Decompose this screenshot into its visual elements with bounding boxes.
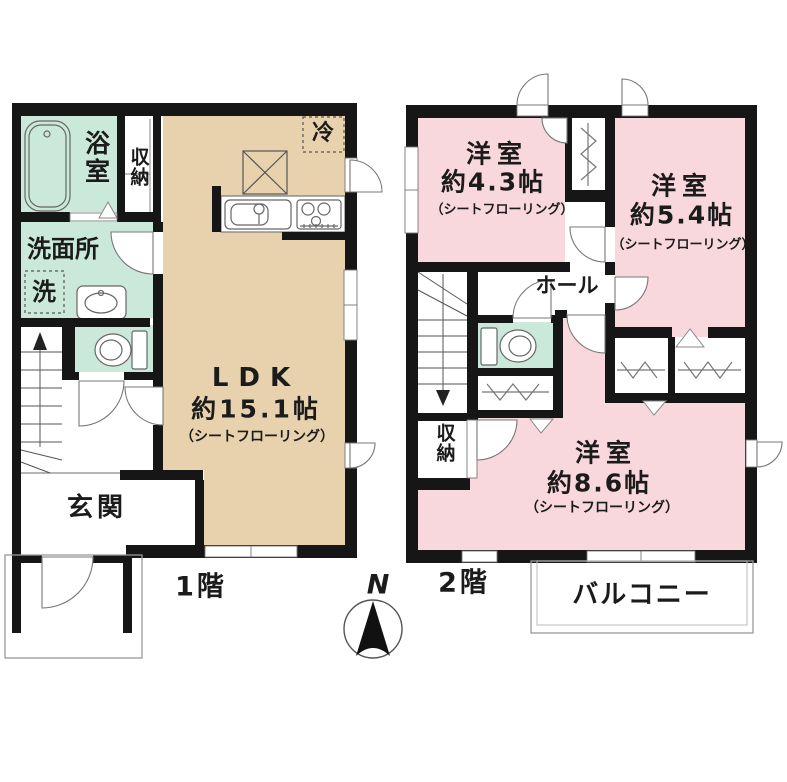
door-ldk-hall [125, 387, 163, 425]
ldk-size-label: 約15.1帖 [191, 397, 321, 422]
bedroom86-floor-corner [418, 490, 467, 550]
bedroom43-size-label: 約4.3帖 [441, 170, 545, 195]
compass-needle-icon [356, 601, 390, 656]
bedroom86-name-label: 洋室 [575, 441, 637, 466]
bedroom86-flooring-label: （シートフローリング） [525, 501, 679, 515]
door-bedroom43 [570, 227, 605, 262]
toilet1-icon [95, 331, 147, 369]
compass-north-label: N [367, 572, 390, 599]
window-bedroom43-west [405, 147, 418, 233]
kitchen-counter [221, 196, 345, 232]
storage2f-door-strip [467, 420, 477, 478]
ldk-floor-lower [204, 470, 345, 545]
door-kitchen-out [350, 160, 382, 192]
window-balcony-sliding [587, 551, 695, 562]
stairs-2f [418, 272, 467, 406]
storage1f-label: 収納 [129, 147, 148, 187]
toilet2-icon [481, 328, 536, 365]
ldk-name-label: LDK [212, 365, 300, 391]
bedroom43-flooring-label: （シートフローリング） [430, 204, 573, 217]
door-ldk-out [350, 443, 375, 468]
washroom-label: 洗面所 [27, 237, 99, 261]
window-ldk-south [205, 546, 297, 557]
washer-label: 洗 [32, 280, 56, 304]
bedroom54-name-label: 洋室 [651, 174, 713, 199]
bedroom86-size-label: 約8.6帖 [547, 471, 651, 496]
floor2-label: 2階 [438, 570, 490, 597]
compass [344, 600, 402, 658]
bedroom43-name-label: 洋室 [466, 142, 528, 167]
window-swing-north-b [622, 79, 648, 105]
entrance-label: 玄関 [67, 495, 127, 521]
stairs-down-arrow [436, 390, 450, 406]
bedroom54-flooring-label: （シートフローリング） [611, 239, 754, 252]
fridge-label: 冷 [312, 123, 334, 145]
window-south-small [462, 551, 497, 562]
bathroom-label: 浴室 [84, 130, 109, 186]
hall-label: ホール [536, 276, 599, 297]
stairs-up-arrow [33, 332, 47, 350]
floor-plan-drawing [0, 0, 787, 782]
window-ldk-east [344, 270, 357, 340]
opening-bedroom86-east [746, 440, 757, 467]
closet-d-floor [478, 376, 553, 410]
opening-north-b [622, 105, 648, 116]
storage2f-label: 収納 [435, 423, 454, 463]
window-swing-east [757, 442, 782, 467]
door-toilet1 [79, 381, 124, 426]
bedroom54-size-label: 約5.4帖 [630, 203, 734, 228]
window-swing-north-a [517, 74, 548, 105]
vanity-sink-icon [77, 286, 126, 319]
opening-north-a [517, 105, 548, 116]
door-entrance [42, 557, 93, 608]
balcony-label: バルコニー [572, 582, 711, 608]
ldk-flooring-label: （シートフローリング） [180, 430, 334, 444]
floor1-label: 1階 [175, 574, 227, 601]
floor-plan: 浴室 収納 洗面所 洗 冷 LDK 約15.1帖 （シートフローリング） 玄関 … [0, 0, 787, 782]
stairs-1f [21, 332, 62, 473]
